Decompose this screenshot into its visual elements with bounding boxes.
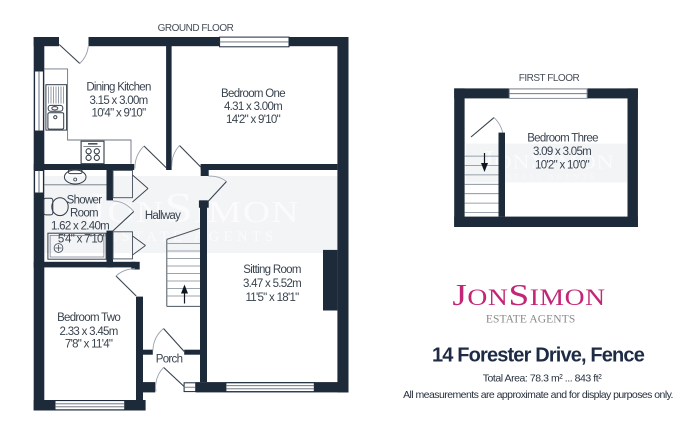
svg-text:3.47 x 5.52m: 3.47 x 5.52m (243, 278, 301, 290)
svg-text:Bedroom Three: Bedroom Three (527, 133, 598, 145)
svg-text:14'2" x 9'10": 14'2" x 9'10" (226, 114, 281, 126)
svg-text:Bedroom Two: Bedroom Two (57, 312, 120, 324)
svg-text:2.33 x 3.45m: 2.33 x 3.45m (60, 326, 118, 338)
svg-text:Sitting Room: Sitting Room (243, 264, 301, 276)
svg-text:3.15 x 3.00m: 3.15 x 3.00m (89, 95, 147, 107)
svg-text:All measurements are approxima: All measurements are approximate and for… (403, 389, 673, 401)
svg-text:14 Forester Drive, Fence: 14 Forester Drive, Fence (432, 345, 645, 367)
svg-text:Bedroom One: Bedroom One (221, 88, 285, 100)
svg-text:Porch: Porch (156, 354, 183, 366)
svg-text:10'4" x 9'10": 10'4" x 9'10" (92, 108, 147, 120)
svg-text:Dining Kitchen: Dining Kitchen (86, 82, 151, 94)
svg-text:3.09 x 3.05m: 3.09 x 3.05m (533, 146, 591, 158)
svg-text:ESTATE AGENTS: ESTATE AGENTS (486, 314, 576, 326)
svg-text:Hallway: Hallway (145, 210, 181, 222)
svg-text:10'2" x 10'0": 10'2" x 10'0" (535, 160, 590, 172)
svg-text:Shower: Shower (67, 195, 103, 207)
svg-text:11'5" x 18'1": 11'5" x 18'1" (245, 292, 299, 304)
svg-text:GROUND FLOOR: GROUND FLOOR (158, 23, 234, 34)
svg-text:1.62 x 2.40m: 1.62 x 2.40m (51, 221, 109, 233)
svg-text:Room: Room (70, 208, 98, 220)
svg-text:4.31 x 3.00m: 4.31 x 3.00m (224, 101, 282, 113)
svg-text:5'4" x 7'10": 5'4" x 7'10" (58, 234, 107, 246)
svg-text:FIRST FLOOR: FIRST FLOOR (519, 73, 580, 84)
svg-text:Total Area: 78.3 m² ... 843 ft: Total Area: 78.3 m² ... 843 ft² (483, 373, 602, 385)
svg-text:7'8" x 11'4": 7'8" x 11'4" (65, 339, 113, 351)
svg-text:ESTATE AGENTS: ESTATE AGENTS (499, 172, 597, 182)
